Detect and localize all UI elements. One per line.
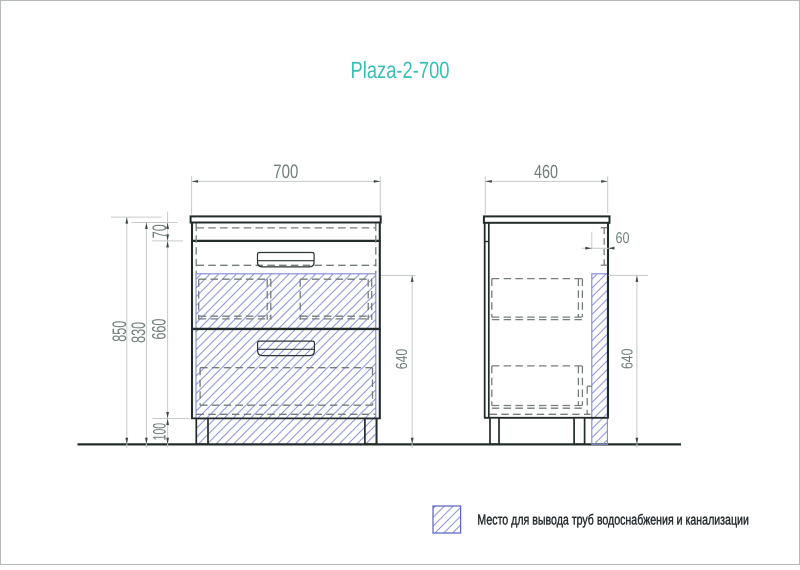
svg-text:70: 70 <box>149 224 171 238</box>
svg-text:700: 700 <box>273 161 298 183</box>
svg-text:100: 100 <box>150 423 170 441</box>
svg-text:640: 640 <box>619 348 636 369</box>
svg-text:830: 830 <box>128 322 150 343</box>
svg-text:Plaza-2-700: Plaza-2-700 <box>351 57 450 83</box>
svg-text:Место для вывода труб водоснаб: Место для вывода труб водоснабжения и ка… <box>477 513 749 529</box>
svg-text:640: 640 <box>394 349 411 370</box>
svg-text:60: 60 <box>616 230 630 247</box>
svg-text:460: 460 <box>534 162 558 183</box>
svg-text:660: 660 <box>149 319 171 340</box>
